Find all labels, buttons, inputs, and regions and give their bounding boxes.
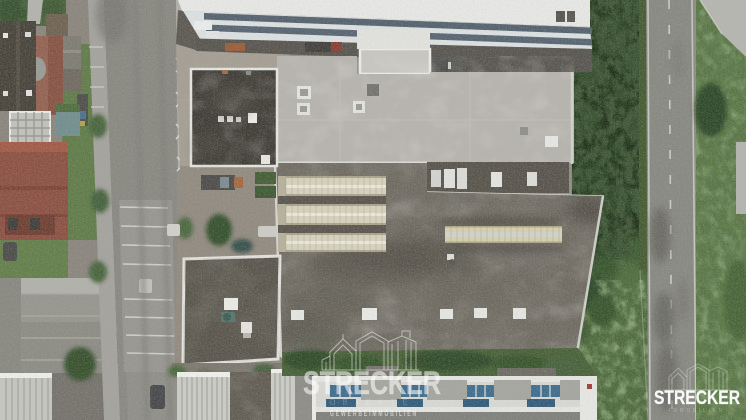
svg-text:STRECKER: STRECKER <box>654 387 740 409</box>
svg-text:IMMOBILIEN: IMMOBILIEN <box>669 408 725 414</box>
svg-text:OBJEKTE: OBJEKTE <box>329 398 414 407</box>
svg-text:GEWERBEIMMOBILIEN: GEWERBEIMMOBILIEN <box>330 409 418 418</box>
svg-text:STRECKER: STRECKER <box>303 365 441 401</box>
